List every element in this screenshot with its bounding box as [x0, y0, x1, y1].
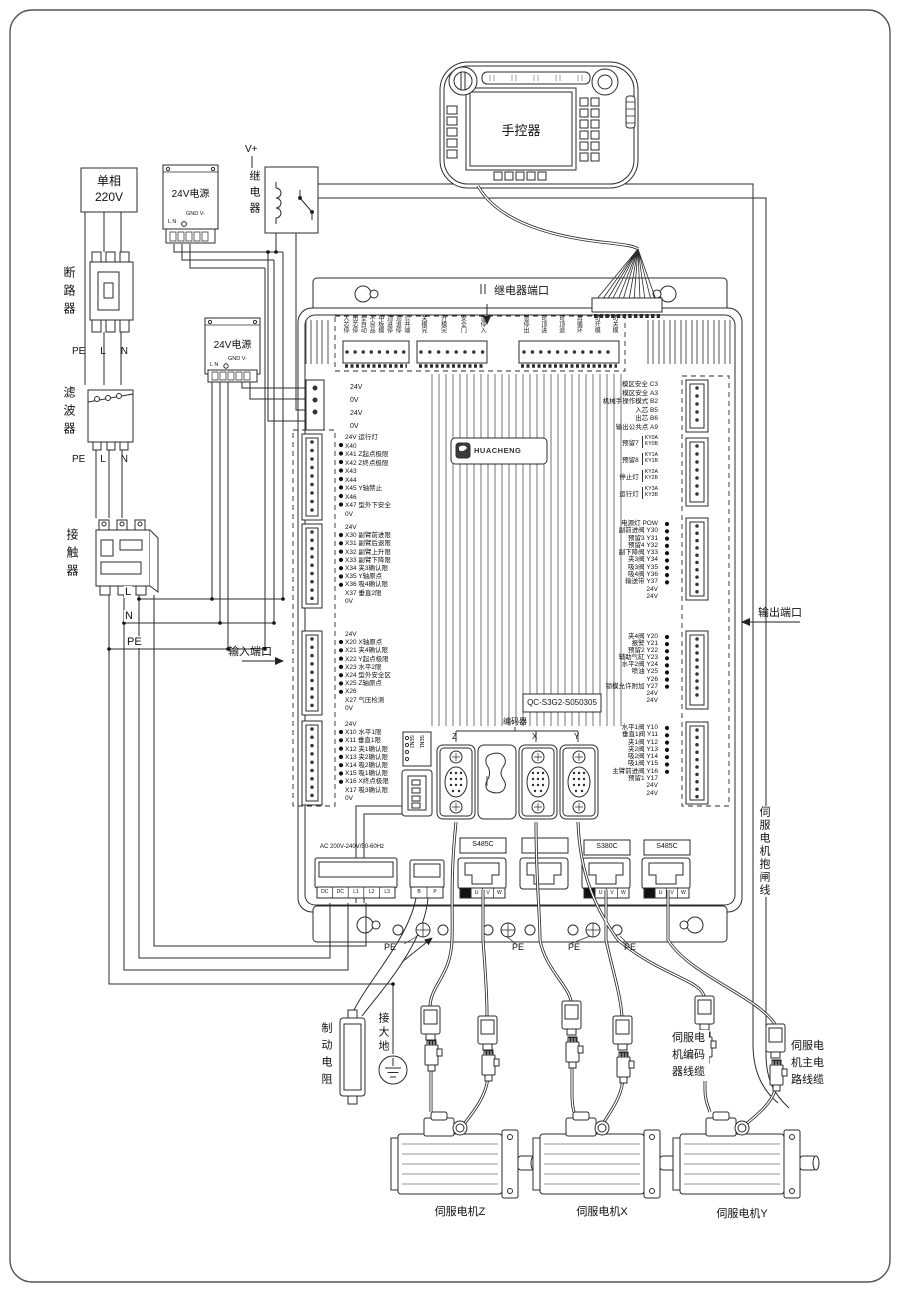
item: 24V	[508, 586, 658, 593]
item: X31 副臂后退限	[345, 540, 391, 548]
item: 输送带 Y37	[508, 578, 658, 585]
l-label: L	[100, 346, 106, 357]
ky-name: 预留7	[622, 437, 639, 447]
model-label: QC-S3G2-S050305	[523, 698, 601, 707]
item: 预留1 Y17	[508, 775, 658, 782]
item: 吸3阀 Y35	[508, 564, 658, 571]
l-label: L	[100, 454, 106, 465]
ky-name: 停止灯	[619, 471, 639, 481]
item: 24V	[350, 407, 362, 420]
item: B	[411, 888, 427, 898]
item: U	[655, 889, 666, 899]
relay-block1-labels: 入芯停出芯停全自动不良品中板模顶进停顶退停公共端	[341, 315, 409, 341]
item: U	[471, 889, 482, 899]
item: 机械手操作模式 B2	[508, 398, 658, 407]
pendant-label: 手控器	[466, 120, 576, 139]
brake-resistor	[340, 1010, 365, 1104]
item: X34 夹3确认限	[345, 565, 391, 573]
item: X22 Y起点极限	[345, 656, 391, 664]
item: 输出公共点 A9	[508, 424, 658, 433]
item: 锁模允许附加 Y27	[508, 683, 658, 690]
brake-terminal-pins: BP	[411, 888, 443, 898]
bus-l-label: L	[124, 586, 132, 598]
output-y30-rows: 电源灯 POW副前进阀 Y30预留3 Y31预留4 Y32副下降阀 Y33夹3阀…	[508, 520, 658, 600]
item: 24V	[508, 790, 658, 797]
item: 24V	[508, 690, 658, 697]
item: X41 Z起点极限	[345, 451, 391, 460]
item: 24V	[345, 631, 391, 639]
item: 副前进阀 Y30	[508, 527, 658, 534]
item: 24V	[350, 381, 362, 394]
item: 顶进停	[385, 315, 392, 341]
item: W	[494, 889, 505, 899]
item: 0V	[345, 795, 389, 803]
item: 可顶进	[539, 315, 546, 341]
power-terminal-pins: DCDCL1L2L3	[317, 888, 395, 898]
pe-label: PE	[72, 454, 85, 465]
sen-connector	[402, 732, 432, 816]
psu1-ln-label: L N	[168, 219, 176, 225]
drive1-label: S485C	[460, 841, 506, 848]
item: X14 吸2确认限	[345, 762, 389, 770]
ky-name: 运行灯	[619, 488, 639, 498]
item: P	[427, 888, 443, 898]
psu2-ln-label: L N	[210, 362, 218, 368]
cable-plugs	[421, 996, 787, 1091]
item: 急停出	[521, 315, 528, 341]
item: X21 夹4确认限	[345, 647, 391, 655]
item: 主臂前进阀 Y16	[508, 768, 658, 775]
ky-group-2: 停止灯 KY2AKY2B	[508, 470, 658, 482]
item: V	[606, 889, 617, 899]
input-port-label: 输入端口	[228, 643, 272, 659]
item: 垂直1阀 Y11	[508, 731, 658, 738]
relay-box	[265, 167, 318, 233]
relay-label: 继电器	[246, 170, 262, 218]
pe-bottom-3: PE	[568, 942, 580, 952]
item: X42 Z终点极限	[345, 460, 391, 469]
ac-rating-label: AC 200V-240V/50-60Hz	[320, 844, 384, 850]
wiring-diagram: 单相 220V 断路器 滤波器 接触器 PE L N PE L N L N PE…	[0, 0, 900, 1291]
psu2-label: 24V电源	[205, 336, 260, 351]
output-y10-rows: 水平1阀 Y10垂直1阀 Y11夹1阀 Y12夹2阀 Y13吸2阀 Y14吸1阀…	[508, 724, 658, 797]
brake-cable-label: 伺服电机抱闸线	[756, 806, 772, 897]
n-label: N	[121, 454, 128, 465]
axis-x-label: X	[532, 732, 537, 741]
item: 24V	[508, 593, 658, 600]
brake-resistor-label: 制动电阻	[318, 1022, 334, 1090]
item: 预留3 Y31	[508, 535, 658, 542]
item: 0V	[345, 598, 391, 606]
pe-label: PE	[72, 346, 85, 357]
psu2-gnd-label: GND V-	[228, 356, 247, 362]
contactor	[96, 520, 158, 595]
vplus-label: V+	[245, 144, 258, 155]
pe-bottom-1: PE	[384, 942, 396, 952]
item: 吸1阀 Y15	[508, 760, 658, 767]
item: X11 垂直1限	[345, 737, 389, 745]
item: DC	[333, 888, 349, 898]
bus-n-label: N	[124, 610, 134, 622]
ky-b: KY0B	[645, 442, 658, 448]
item: X23 水平2限	[345, 664, 391, 672]
item: W	[678, 889, 689, 899]
item: 出芯停	[350, 315, 357, 341]
logo-text: HUACHENG	[474, 446, 521, 455]
motor-y-label: 伺服电机Y	[674, 1205, 810, 1221]
encoder-label: 编码器	[503, 716, 527, 727]
output-port-label: 输出端口	[758, 604, 802, 620]
output-top-rows: 模区安全 C3模区安全 A3机械手操作模式 B2入芯 B5出芯 B6输出公共点 …	[508, 381, 658, 433]
item: 急停入	[478, 315, 485, 341]
axis-z-label: Z	[452, 732, 457, 741]
item: 可关模	[610, 315, 617, 341]
item: 夹1阀 Y12	[508, 739, 658, 746]
item: X43	[345, 468, 391, 477]
item: X36 吸4确认限	[345, 581, 391, 589]
n-label: N	[121, 346, 128, 357]
uvw-pins-3: UVW	[655, 889, 689, 899]
item: 0V	[345, 511, 391, 520]
item: 24V	[345, 721, 389, 729]
item: X25 Z轴原点	[345, 680, 391, 688]
item: 0V	[350, 420, 362, 433]
mains-source-label: 单相 220V	[81, 173, 137, 205]
item: 0V	[350, 394, 362, 407]
item: L3	[379, 888, 395, 898]
bus-pe-label: PE	[126, 636, 143, 648]
item: 关模完	[419, 315, 426, 341]
item: X33 副臂下降限	[345, 557, 391, 565]
item: 模区安全 A3	[508, 390, 658, 399]
item: V	[666, 889, 677, 899]
item: 24V 运行灯	[345, 434, 391, 443]
ky-group-1: 预留8 KY1AKY1B	[508, 453, 658, 465]
item: 24V	[345, 524, 391, 532]
uvw-pins-1: UVW	[471, 889, 505, 899]
ky-b: KY2B	[645, 476, 658, 482]
encoder-cable-label: 伺服电机编码器线缆	[671, 1030, 709, 1081]
axis-y-label: Y	[574, 732, 579, 741]
item: 开模完	[439, 315, 446, 341]
item: X37 垂直2限	[345, 590, 391, 598]
sen2-label: SEN2	[408, 735, 414, 748]
item: X24 型外安全区	[345, 672, 391, 680]
item: 24V	[508, 782, 658, 789]
item: 再循环	[574, 315, 581, 341]
motor-z-label: 伺服电机Z	[392, 1203, 528, 1219]
line-filter	[88, 390, 133, 450]
item: 0V	[345, 705, 391, 713]
psu1-label: 24V电源	[163, 185, 218, 200]
ky-b: KY3B	[645, 493, 658, 499]
peln-row2: PE L N	[72, 454, 128, 465]
contactor-label: 接触器	[64, 528, 81, 582]
relay-block3-labels: 急停出可顶进可顶退再循环可开模可关模	[521, 315, 617, 341]
output-y20-rows: 夹4阀 Y20报警 Y21预留2 Y22辅助气缸 Y23水平2阀 Y24喷油 Y…	[508, 633, 658, 704]
sen1-label: SEN1	[418, 735, 424, 748]
item: X17 吸3确认限	[345, 787, 389, 795]
item: V	[482, 889, 493, 899]
servo-motors	[391, 1112, 819, 1198]
uvw-pins-2: UVW	[595, 889, 629, 899]
item: 不良品	[367, 315, 374, 341]
item: W	[618, 889, 629, 899]
item: X16 X终点极限	[345, 778, 389, 786]
ky-group-0: 预留7 KY0AKY0B	[508, 436, 658, 448]
item: X40	[345, 443, 391, 452]
ky-name: 预留8	[622, 454, 639, 464]
relay-port-label: 继电器端口	[494, 282, 549, 298]
item: 模区安全 C3	[508, 381, 658, 390]
item: 顶退停	[393, 315, 400, 341]
item: 可顶退	[557, 315, 564, 341]
drive3-label: S485C	[644, 843, 690, 850]
item: X47 型外下安全	[345, 502, 391, 511]
item: 公共端	[402, 315, 409, 341]
psu1-gnd-label: GND V-	[186, 211, 205, 217]
item: 中板模	[376, 315, 383, 341]
earth-label: 接大地	[375, 1012, 391, 1054]
drive2-label: S380C	[584, 843, 630, 850]
power-cable-label: 伺服电机主电路线缆	[790, 1038, 828, 1089]
item: X13 夹2确认限	[345, 754, 389, 762]
item: 安全门	[458, 315, 465, 341]
input-x30-rows: 24VX30 副臂前进限X31 副臂后退限X32 副臂上升限X33 副臂下降限X…	[345, 524, 391, 606]
motor-x-label: 伺服电机X	[534, 1203, 670, 1219]
item: 出芯 B6	[508, 415, 658, 424]
item: X32 副臂上升限	[345, 549, 391, 557]
item: 可开模	[592, 315, 599, 341]
pe-bottom-2: PE	[512, 942, 524, 952]
peln-row1: PE L N	[72, 346, 128, 357]
relay-block2-labels: 关模完开模完安全门急停入	[419, 315, 485, 341]
ky-group-3: 运行灯 KY3AKY3B	[508, 487, 658, 499]
pe-bottom-4: PE	[624, 942, 636, 952]
psu-24v-1	[163, 165, 218, 243]
input-power-rows: 24V0V24V0V	[350, 381, 362, 433]
circuit-breaker	[90, 252, 133, 332]
ky-b: KY1B	[645, 459, 658, 465]
breaker-label: 断路器	[61, 266, 78, 320]
item: X45 Y轴禁止	[345, 485, 391, 494]
item: L1	[348, 888, 364, 898]
item: X44	[345, 477, 391, 486]
input-x40-rows: 24V 运行灯X40X41 Z起点极限X42 Z终点极限X43X44X45 Y轴…	[345, 434, 391, 519]
pendant-left-buttons	[447, 106, 457, 158]
item: 喷油 Y25	[508, 668, 658, 675]
filter-label: 滤波器	[61, 386, 78, 440]
item: 全自动	[358, 315, 365, 341]
item: U	[595, 889, 606, 899]
item: DC	[317, 888, 333, 898]
input-x20-rows: 24VX20 X轴原点X21 夹4确认限X22 Y起点极限X23 水平2限X24…	[345, 631, 391, 713]
item: 夹3阀 Y34	[508, 556, 658, 563]
item: X12 夹1确认限	[345, 746, 389, 754]
item: L2	[364, 888, 380, 898]
item: 入芯停	[341, 315, 348, 341]
item: Y26	[508, 676, 658, 683]
item: X26	[345, 688, 391, 696]
input-x10-rows: 24VX10 水平1限X11 垂直1限X12 夹1确认限X13 夹2确认限X14…	[345, 721, 389, 803]
item: X46	[345, 494, 391, 503]
item: X27 气压检测	[345, 697, 391, 705]
pendant-bottom-buttons	[494, 172, 546, 180]
